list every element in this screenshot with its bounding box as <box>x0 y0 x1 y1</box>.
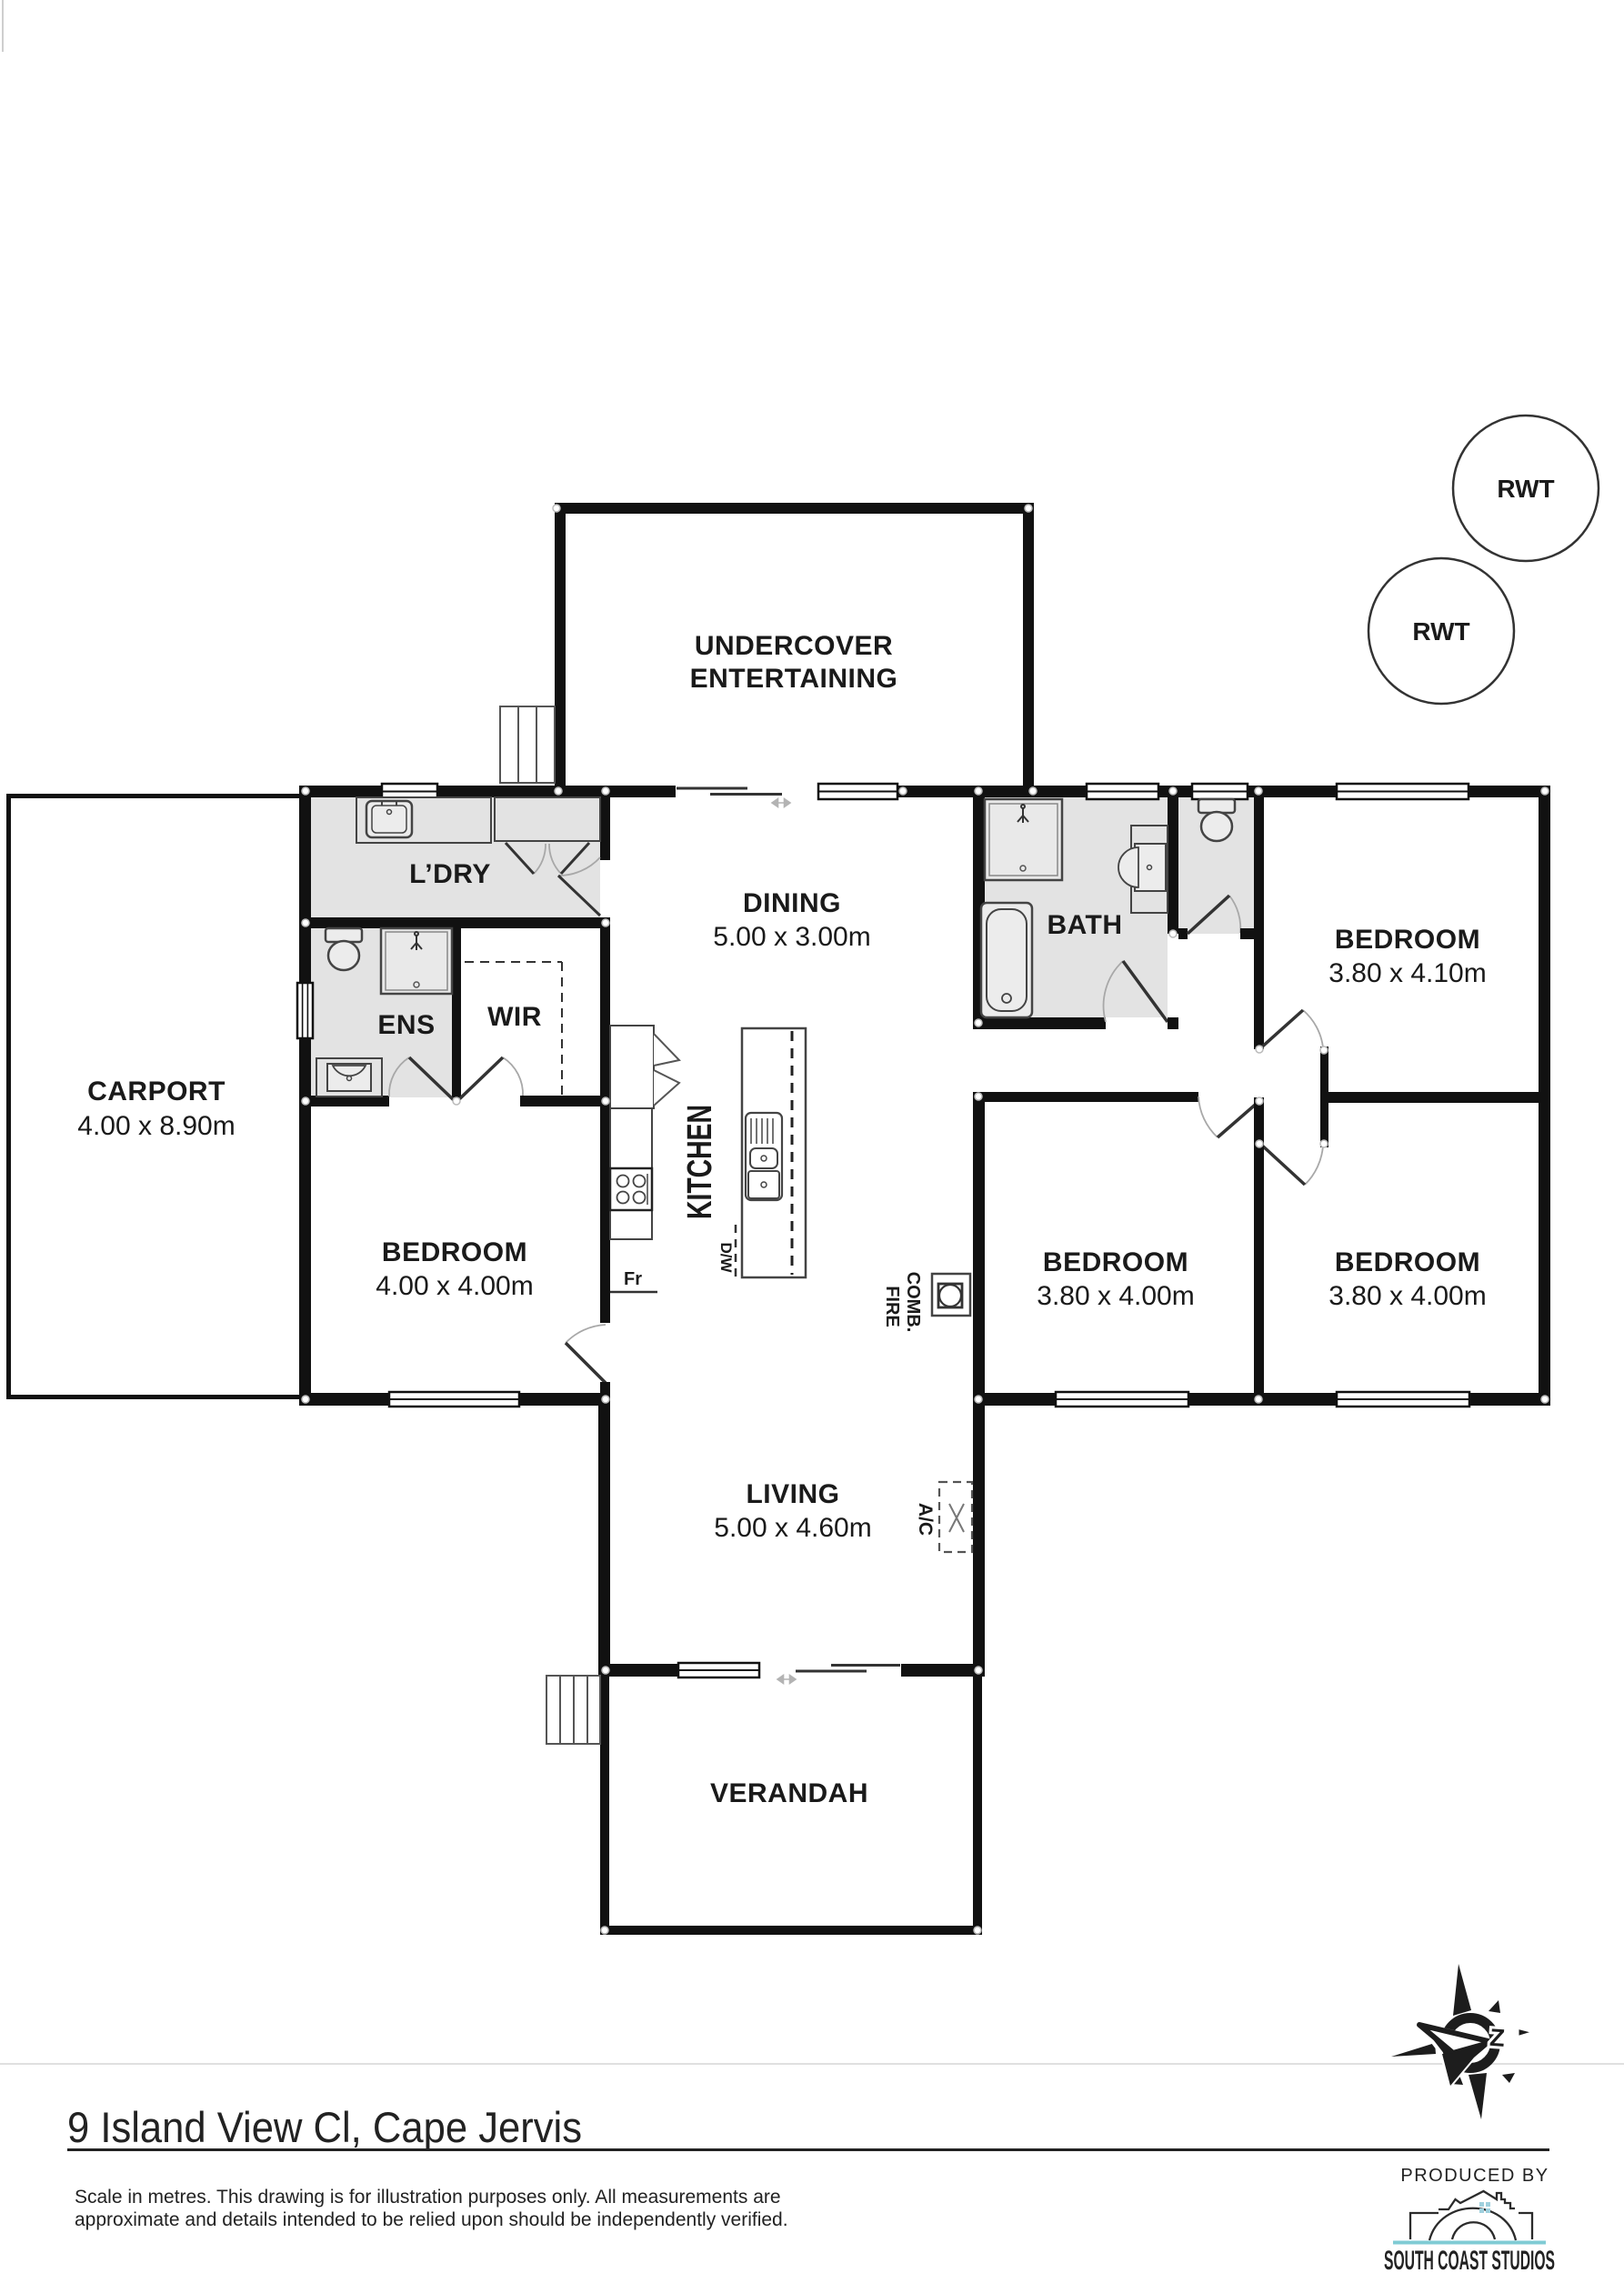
svg-text:PRODUCED BY: PRODUCED BY <box>1400 2166 1549 2186</box>
svg-text:Z: Z <box>1489 2024 1506 2052</box>
svg-text:3.80 x 4.10m: 3.80 x 4.10m <box>1328 958 1486 988</box>
svg-text:DINING: DINING <box>743 888 841 918</box>
svg-text:3.80 x 4.00m: 3.80 x 4.00m <box>1037 1281 1194 1311</box>
svg-text:SOUTH COAST STUDIOS: SOUTH COAST STUDIOS <box>1384 2246 1555 2273</box>
svg-text:Scale in metres. This drawing: Scale in metres. This drawing is for ill… <box>75 2187 781 2208</box>
svg-text:ENTERTAINING: ENTERTAINING <box>690 664 898 694</box>
svg-text:4.00 x 4.00m: 4.00 x 4.00m <box>376 1271 533 1301</box>
svg-text:LIVING: LIVING <box>746 1479 839 1509</box>
svg-text:RWT: RWT <box>1412 617 1469 646</box>
svg-text:WIR: WIR <box>487 1002 542 1032</box>
svg-text:FIRE: FIRE <box>882 1286 902 1327</box>
svg-text:ENS: ENS <box>377 1010 435 1040</box>
svg-text:RWT: RWT <box>1497 475 1554 503</box>
svg-text:3.80 x 4.00m: 3.80 x 4.00m <box>1328 1281 1486 1311</box>
svg-text:BEDROOM: BEDROOM <box>1335 925 1480 955</box>
svg-text:VERANDAH: VERANDAH <box>710 1778 868 1808</box>
svg-text:KITCHEN: KITCHEN <box>681 1105 719 1219</box>
svg-text:L’DRY: L’DRY <box>409 859 491 889</box>
svg-text:BEDROOM: BEDROOM <box>1043 1247 1188 1277</box>
svg-text:A/C: A/C <box>915 1503 936 1536</box>
svg-text:approximate and details intend: approximate and details intended to be r… <box>75 2209 788 2230</box>
svg-text:Fr: Fr <box>624 1269 642 1289</box>
svg-text:BATH: BATH <box>1047 910 1122 940</box>
svg-text:CARPORT: CARPORT <box>87 1076 226 1106</box>
svg-text:5.00 x 4.60m: 5.00 x 4.60m <box>714 1513 871 1543</box>
svg-text:UNDERCOVER: UNDERCOVER <box>695 631 893 661</box>
svg-text:5.00 x 3.00m: 5.00 x 3.00m <box>713 922 870 952</box>
svg-text:BEDROOM: BEDROOM <box>1335 1247 1480 1277</box>
svg-text:9 Island View Cl, Cape Jervis: 9 Island View Cl, Cape Jervis <box>67 2103 582 2151</box>
svg-text:4.00 x 8.90m: 4.00 x 8.90m <box>77 1111 235 1141</box>
svg-text:COMB.: COMB. <box>903 1272 923 1333</box>
svg-text:BEDROOM: BEDROOM <box>382 1237 527 1267</box>
svg-text:D/W: D/W <box>717 1242 735 1273</box>
